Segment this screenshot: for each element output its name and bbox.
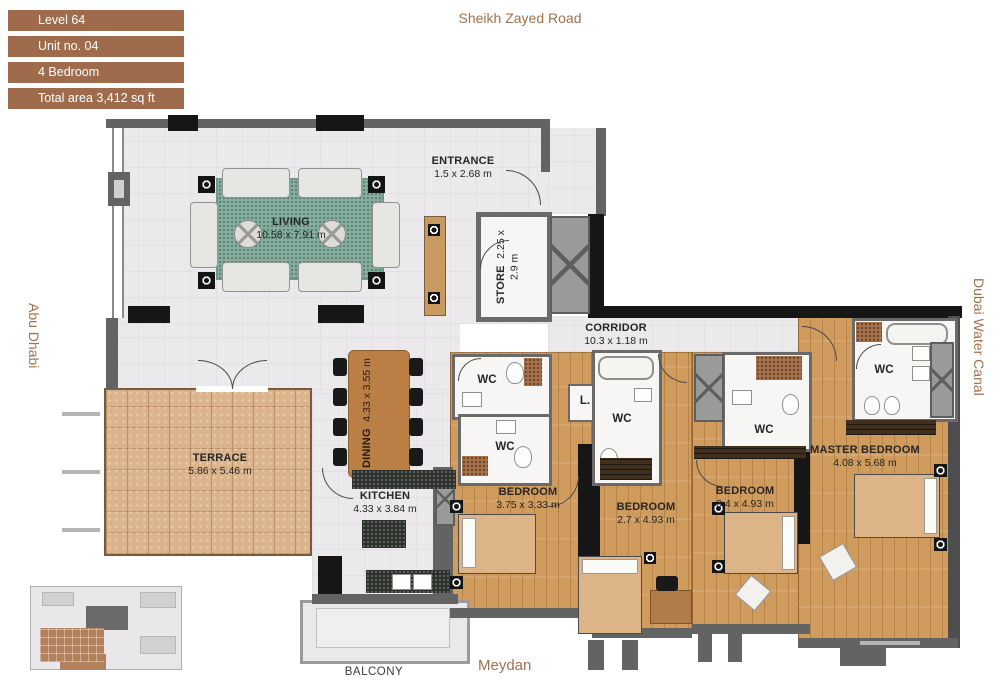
- corner-table-2: [368, 176, 385, 193]
- sofa-bottom-left: [222, 262, 290, 292]
- kitchen-sink-2: [413, 574, 432, 590]
- dining-chair-4: [333, 448, 347, 466]
- dining-chair-2: [333, 388, 347, 406]
- kitchen-sink-1: [392, 574, 411, 590]
- bedroom1-label: BEDROOM 3.75 x 3.33 m: [468, 486, 588, 512]
- wc2-shower-mosaic: [462, 456, 488, 476]
- window-bottom-master: [860, 641, 920, 645]
- entry-vestibule-floor: [548, 128, 598, 214]
- wall-shaft-black: [588, 214, 604, 314]
- sofa-side-left: [190, 202, 218, 268]
- room-dims: 4.33 x 3.55 m: [361, 358, 373, 422]
- sofa-side-right: [372, 202, 400, 268]
- stub-1: [588, 640, 604, 670]
- louver-1: [62, 412, 100, 416]
- key-plan-core: [86, 606, 128, 630]
- wall-left-lower: [106, 318, 118, 390]
- corner-table-3: [198, 272, 215, 289]
- stub-2: [622, 640, 638, 670]
- column-mid-1: [128, 306, 170, 323]
- master-wc-label: WC: [864, 364, 904, 376]
- info-panel: Level 64 Unit no. 04 4 Bedroom Total are…: [8, 10, 184, 109]
- bed2-wardrobe: [600, 458, 652, 480]
- wall-entrance-right: [541, 128, 550, 172]
- room-dims: 5.86 x 5.46 m: [150, 465, 290, 478]
- bed1-side-table-1: [450, 500, 463, 513]
- wall-top-right-black: [588, 306, 962, 318]
- dining-table: DINING 4.33 x 3.55 m: [348, 350, 410, 478]
- room-dims: 4.33 x 3.84 m: [325, 503, 445, 516]
- column-mid-2: [318, 305, 364, 323]
- dining-chair-5: [409, 358, 423, 376]
- corner-table-1: [198, 176, 215, 193]
- kitchen-island: [362, 520, 406, 548]
- wc2-sink: [496, 420, 516, 434]
- balcony-inner: [316, 608, 450, 648]
- stub-3: [698, 634, 712, 662]
- room-dims: 2.7 x 4.93 m: [596, 514, 696, 527]
- master-bed-pillows: [924, 478, 937, 534]
- wc1-toilet: [506, 362, 524, 384]
- balcony-label: BALCONY: [320, 666, 428, 678]
- bed1-pillows: [462, 518, 476, 568]
- key-plan-wing-3: [140, 636, 176, 654]
- bath3-toilet: [782, 394, 799, 415]
- bed2-pillows: [582, 559, 638, 574]
- room-dims: 4.08 x 5.68 m: [800, 457, 930, 470]
- wall-bottom-bed3: [692, 624, 810, 634]
- room-dims: 3.4 x 4.93 m: [695, 498, 795, 511]
- floor-plan-page: Level 64 Unit no. 04 4 Bedroom Total are…: [0, 0, 1000, 690]
- bedroom3-label: BEDROOM 3.4 x 4.93 m: [695, 485, 795, 511]
- room-name: CORRIDOR: [560, 322, 672, 335]
- room-name: BEDROOM: [596, 501, 696, 514]
- bed2-side-table: [644, 552, 656, 564]
- road-label-top: Sheikh Zayed Road: [420, 10, 620, 26]
- bath3-sink: [732, 390, 752, 405]
- louver-2: [62, 470, 100, 474]
- dining-chair-3: [333, 418, 347, 436]
- room-name: BEDROOM: [468, 486, 588, 499]
- room-name: KITCHEN: [325, 490, 445, 503]
- living-label: LIVING 10.58 x 7.91 m: [240, 216, 342, 242]
- entrance-label: ENTRANCE 1.5 x 2.68 m: [415, 155, 511, 181]
- column-top-1: [168, 115, 198, 131]
- master-sink-1: [912, 346, 930, 361]
- wc2-label: WC: [485, 441, 525, 453]
- bath2-sink: [634, 388, 652, 402]
- bath2-tub: [598, 356, 654, 380]
- kitchen-label: KITCHEN 4.33 x 3.84 m: [325, 490, 445, 516]
- terrace-label: TERRACE 5.86 x 5.46 m: [150, 452, 290, 478]
- key-plan-unit-texture: [40, 628, 104, 662]
- louver-3: [62, 528, 100, 532]
- master-wc-mosaic: [856, 322, 882, 342]
- room-dims: 10.58 x 7.91 m: [240, 229, 342, 242]
- sofa-top-left: [222, 168, 290, 198]
- master-wardrobe: [846, 420, 936, 435]
- room-dims: 3.75 x 3.33 m: [468, 499, 588, 512]
- road-label-right: Dubai Water Canal: [971, 278, 987, 428]
- master-toilet: [864, 396, 880, 415]
- column-kitchen: [318, 556, 342, 594]
- bath3-mosaic: [756, 356, 802, 380]
- wc1-sink: [462, 392, 482, 407]
- corner-table-4: [368, 272, 385, 289]
- console-knob-1: [428, 224, 440, 236]
- bedroom2-label: BEDROOM 2.7 x 4.93 m: [596, 501, 696, 527]
- bed2-desk: [650, 590, 692, 624]
- key-plan: [28, 578, 184, 674]
- wc1-label: WC: [467, 374, 507, 386]
- console-knob-2: [428, 292, 440, 304]
- room-name: DINING: [361, 428, 373, 468]
- kitchen-counter-top: [352, 470, 456, 489]
- column-top-2: [316, 115, 364, 131]
- room-name: ENTRANCE: [415, 155, 511, 168]
- room-name: LIVING: [240, 216, 342, 229]
- bed3-duct: [694, 354, 724, 422]
- sofa-bottom-right: [298, 262, 362, 292]
- info-unit: Unit no. 04: [8, 36, 184, 57]
- dining-chair-7: [409, 418, 423, 436]
- stub-4: [728, 634, 742, 662]
- key-plan-wing-1: [42, 592, 74, 606]
- bath3-wc-label: WC: [744, 424, 784, 436]
- room-dims: 10.3 x 1.18 m: [560, 335, 672, 348]
- dining-chair-8: [409, 448, 423, 466]
- wall-bottom-bed1: [450, 608, 592, 618]
- dining-label: DINING 4.33 x 3.55 m: [361, 355, 374, 471]
- bath2-wc-label: WC: [602, 413, 642, 425]
- sofa-top-right: [298, 168, 362, 198]
- window-wall-left: [112, 128, 124, 318]
- service-shaft: [550, 216, 590, 314]
- wc1-mosaic: [524, 358, 542, 386]
- bed3-wardrobe: [694, 446, 806, 459]
- room-name: TERRACE: [150, 452, 290, 465]
- master-bedroom-label: MASTER BEDROOM 4.08 x 5.68 m: [800, 444, 930, 470]
- info-area: Total area 3,412 sq ft: [8, 88, 184, 109]
- master-bidet: [884, 396, 900, 415]
- master-duct: [930, 342, 954, 418]
- room-name: MASTER BEDROOM: [800, 444, 930, 457]
- info-level: Level 64: [8, 10, 184, 31]
- master-side-table-1: [934, 464, 947, 477]
- bed2-desk-chair: [656, 576, 678, 591]
- ledge-master: [840, 648, 886, 666]
- room-dims: 1.5 x 2.68 m: [415, 168, 511, 181]
- road-label-left: Abu Dhabi: [26, 303, 42, 413]
- key-plan-wing-2: [140, 592, 176, 608]
- master-side-table-2: [934, 538, 947, 551]
- bed3-side-table-2: [712, 560, 725, 573]
- wall-vestibule-right: [596, 128, 606, 216]
- dining-chair-1: [333, 358, 347, 376]
- corridor-label: CORRIDOR 10.3 x 1.18 m: [560, 322, 672, 348]
- room-name: STORE: [495, 265, 507, 304]
- dining-chair-6: [409, 388, 423, 406]
- info-bedrooms: 4 Bedroom: [8, 62, 184, 83]
- bed1-side-table-2: [450, 576, 463, 589]
- master-sink-2: [912, 366, 930, 381]
- room-name: BEDROOM: [695, 485, 795, 498]
- left-pier-core: [114, 180, 124, 198]
- bed3-pillows: [782, 516, 795, 570]
- road-label-bottom: Meydan: [478, 657, 568, 674]
